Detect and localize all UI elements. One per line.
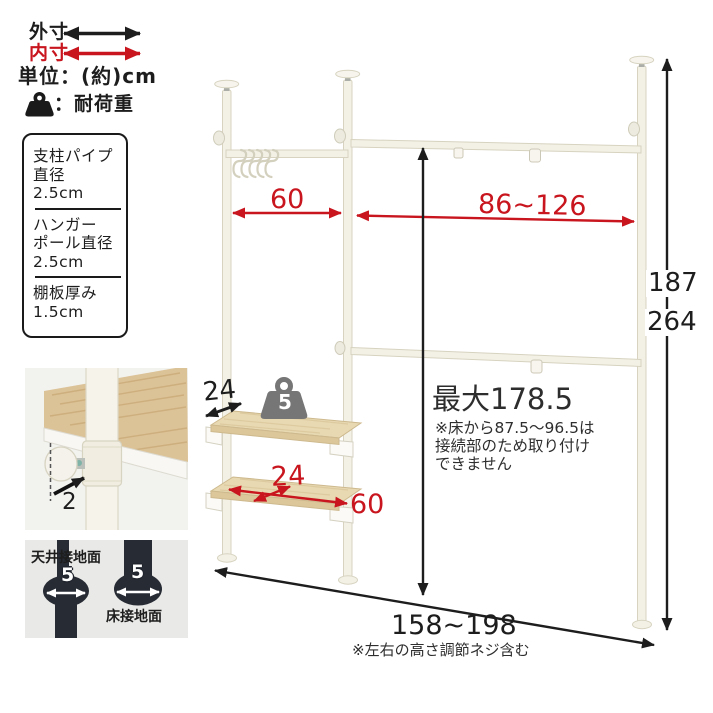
height-max-value: 264 — [645, 309, 699, 336]
spec-text: 2.5cm — [33, 184, 126, 203]
extension-top-bar — [351, 140, 641, 154]
ceiling-contact-value: 5 — [61, 566, 74, 586]
spec-text: 1.5cm — [33, 303, 126, 322]
spec-text: ポール直径 — [33, 234, 126, 253]
shelf-width-value: 60 — [350, 491, 384, 519]
total-width-value: 158~198 — [391, 612, 517, 640]
photo-connector-cuff — [83, 441, 122, 486]
spec-pole-pipe: 支柱パイプ 直径 2.5cm — [33, 147, 126, 203]
ceiling-cap — [215, 80, 239, 88]
pole-joint-photo — [25, 360, 188, 536]
right-pole — [629, 56, 654, 629]
legend-load-label: ：耐荷重 — [54, 95, 134, 115]
spec-text: 2.5cm — [33, 253, 126, 272]
adjuster-knob — [629, 122, 640, 136]
shelf-depth-outer-value: 24 — [202, 376, 238, 407]
spec-text: ハンガー — [33, 216, 126, 235]
shelf-load-value: 5 — [278, 392, 292, 413]
max-mount-height-value: 最大178.5 — [432, 384, 573, 414]
spec-hanger-pole: ハンガー ポール直径 2.5cm — [33, 216, 126, 272]
adjuster-knob — [335, 129, 346, 143]
legend-unit-label: 単位：(約)cm — [18, 66, 157, 87]
extension-lower-bar — [351, 348, 641, 367]
height-min-value: 187 — [646, 270, 700, 297]
floor-contact-value: 5 — [131, 563, 144, 583]
spec-divider — [35, 208, 121, 210]
bar-clip — [454, 148, 463, 158]
product-dimension-diagram: 外寸 内寸 単位：(約)cm ：耐荷重 支柱パイプ 直径 2.5cm ハンガー … — [0, 0, 713, 713]
spec-text: 支柱パイプ — [33, 147, 126, 166]
spec-box: 支柱パイプ 直径 2.5cm ハンガー ポール直径 2.5cm 棚板厚み 1.5… — [22, 133, 128, 338]
total-width-note: ※左右の高さ調節ネジ含む — [352, 643, 530, 659]
adjuster-knob — [214, 131, 225, 145]
ceiling-cap — [630, 56, 654, 64]
pipe-gap-value: 2 — [62, 490, 77, 514]
mount-note-line1: ※床から87.5〜96.5は — [435, 420, 595, 436]
floor-foot — [218, 554, 237, 562]
shelf-depth-inner-value: 24 — [270, 462, 306, 492]
floor-foot — [633, 620, 652, 628]
mount-note-line3: できません — [435, 456, 512, 472]
extension-width-value: 86~126 — [478, 191, 587, 222]
adjuster-knob — [335, 342, 345, 355]
ceiling-cap — [336, 70, 360, 78]
floor-contact-label: 床接地面 — [106, 610, 162, 625]
spec-divider — [35, 276, 121, 278]
bar-clip — [530, 149, 541, 162]
bar-clip — [531, 360, 542, 373]
spec-shelf-thickness: 棚板厚み 1.5cm — [33, 284, 126, 321]
spec-text: 棚板厚み — [33, 284, 126, 303]
legend-outer-label: 外寸 — [29, 23, 69, 43]
spec-text: 直径 — [33, 166, 126, 185]
floor-foot — [339, 576, 358, 584]
load-capacity-icon — [25, 94, 53, 117]
legend-inner-label: 内寸 — [29, 44, 69, 64]
hanger-width-value: 60 — [270, 186, 304, 214]
mount-note-line2: 接続部のため取り付け — [435, 438, 590, 454]
